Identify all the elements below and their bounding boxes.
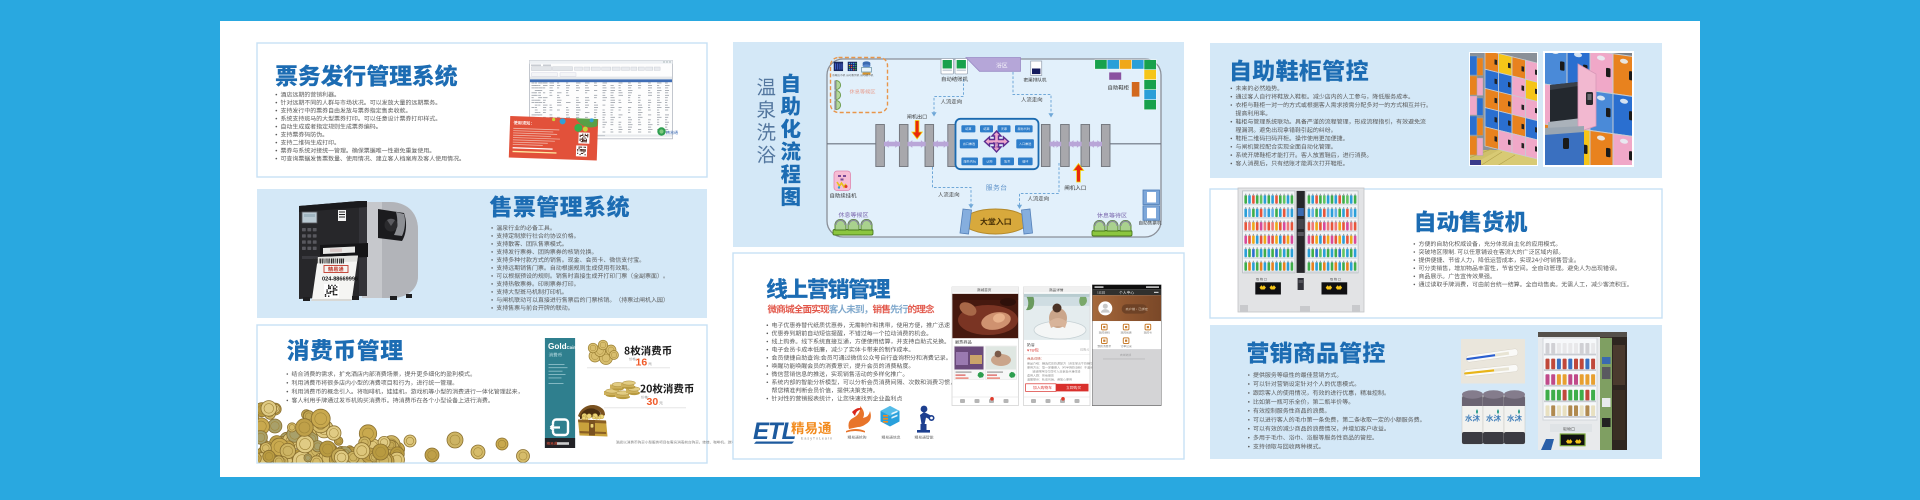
svg-text:E a s y T o L e a r n: E a s y T o L e a r n xyxy=(801,437,832,441)
svg-text:ETL: ETL xyxy=(753,418,796,445)
svg-text:30: 30 xyxy=(647,396,659,408)
svg-text:¥78/包: ¥78/包 xyxy=(1027,347,1039,353)
svg-text:16: 16 xyxy=(636,357,648,369)
svg-text:024-88669996: 024-88669996 xyxy=(322,277,358,283)
